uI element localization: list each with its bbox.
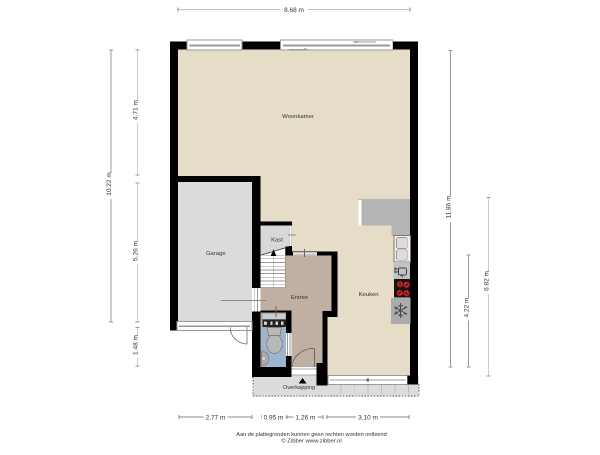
svg-text:5.26 m: 5.26 m [133,241,140,261]
svg-text:© Zibber www.zibber.nl: © Zibber www.zibber.nl [281,437,341,444]
svg-text:6.82 m: 6.82 m [484,271,491,291]
svg-text:Garage: Garage [206,251,226,257]
svg-text:Aan de plattegronden kunnen ge: Aan de plattegronden kunnen geen rechten… [236,432,387,438]
svg-text:2.77 m: 2.77 m [206,414,226,421]
svg-text:Kast: Kast [271,238,283,244]
svg-text:4.71 m: 4.71 m [133,100,140,120]
svg-text:Keuken: Keuken [359,292,379,298]
svg-text:1.26 m: 1.26 m [296,414,316,421]
svg-text:Entree: Entree [291,295,309,301]
svg-text:0.95 m: 0.95 m [264,414,284,421]
svg-text:Overkapping: Overkapping [283,385,315,391]
svg-text:4.22 m: 4.22 m [463,298,470,318]
svg-text:1.48 m: 1.48 m [133,335,140,355]
svg-text:3.10 m: 3.10 m [358,414,378,421]
svg-text:Woonkamer: Woonkamer [282,114,314,120]
svg-text:10.22 m: 10.22 m [106,172,113,196]
svg-text:8.68 m: 8.68 m [284,7,304,14]
svg-text:11.86 m: 11.86 m [445,195,452,218]
